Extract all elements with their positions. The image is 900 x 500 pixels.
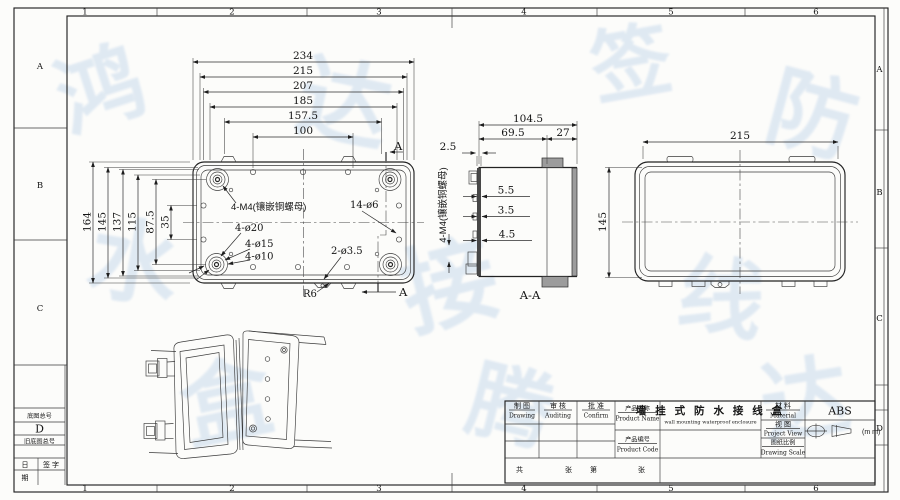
tb-drawing-cn: 制 图	[514, 401, 530, 410]
tb-name-value-en: wall mounting waterproof enclosure	[664, 420, 756, 426]
grid-col-label: 1	[82, 8, 87, 18]
mb-base-no: 底图总号	[27, 412, 52, 420]
tb-scale-en: Drawing Scale	[761, 450, 806, 457]
dim-5-5: 5.5	[498, 185, 515, 197]
grid-col-label: 2	[229, 484, 234, 494]
grid-col-label: 3	[376, 8, 381, 18]
tb-auditing-en: Auditing	[544, 413, 571, 420]
grid-row-label: B	[37, 181, 43, 191]
tb-sheet-di: 第	[590, 465, 597, 474]
tb-material-cn: 材 料	[775, 401, 791, 410]
back-view: 215 145	[597, 130, 858, 294]
drawing-svg: 1 2 3 4 5 6 1 2 3 4 5 6 A B C A B C D	[0, 0, 900, 500]
iso-view	[144, 331, 332, 459]
section-view: 104.5 69.5 27 2.5 5.5 3.5 4.5 4-M4(镶嵌铜螺母…	[437, 113, 577, 302]
grid-col-label: 4	[521, 8, 526, 18]
grid-row-label: C	[876, 314, 883, 324]
dim-145: 145	[97, 212, 109, 232]
grid-col-label: 4	[521, 484, 526, 494]
dim-215: 215	[293, 65, 313, 77]
tb-name-value: 墙 挂 式 防 水 接 线 盒	[636, 404, 785, 417]
ann-m4: 4-M4(镶嵌铜螺母)	[231, 201, 306, 213]
mb-old-no: 旧底图总号	[24, 438, 55, 446]
margin-block: 底图总号 D 旧底图总号 日 签 字 期	[14, 365, 65, 485]
ann-14-d6: 14-ø6	[350, 200, 379, 211]
tb-view-en: Project View	[764, 431, 803, 438]
grid-row-label: B	[876, 188, 882, 198]
tb-product-code-cn: 产品编号	[625, 436, 650, 444]
tb-sheet-zhang1: 张	[565, 465, 572, 474]
grid-col-label: 5	[668, 8, 673, 18]
section-letter-bottom: A	[398, 285, 408, 299]
title-block: 制 图 Drawing 审 核 Auditing 批 准 Confirm 产品名…	[505, 401, 880, 483]
dim-4-5: 4.5	[499, 229, 516, 241]
dim-27: 27	[556, 127, 569, 139]
dim-137: 137	[112, 212, 124, 232]
mb-ri: 日	[22, 461, 29, 469]
dim-215-back: 215	[730, 130, 750, 142]
tb-sheet-zhang2: 张	[638, 465, 645, 474]
tb-confirm-cn: 批 准	[588, 401, 604, 410]
grid-col-label: 5	[668, 484, 673, 494]
tb-unit: (m m)	[862, 429, 880, 436]
dim-157-5: 157.5	[288, 110, 318, 122]
ann-4-d10: 4-ø10	[245, 252, 274, 263]
grid-col-label: 1	[82, 484, 87, 494]
plan-view: A A 234 215 207 185 157.5 100	[82, 50, 425, 300]
sheet-border: 1 2 3 4 5 6 1 2 3 4 5 6 A B C A B C D	[14, 8, 888, 495]
tb-auditing-cn: 审 核	[550, 401, 566, 410]
dim-145-back: 145	[597, 212, 609, 232]
ann-4-d15: 4-ø15	[245, 239, 274, 250]
mb-size: D	[35, 423, 44, 436]
mb-sign: 签 字	[43, 460, 59, 469]
dim-185: 185	[293, 95, 313, 107]
tb-view-cn: 视 图	[775, 420, 791, 429]
dim-100: 100	[293, 125, 313, 137]
projection-symbol-icon	[805, 424, 851, 439]
section-label: A-A	[519, 288, 541, 302]
grid-col-label: 6	[813, 8, 818, 18]
tb-scale-cn: 图纸比例	[771, 439, 796, 447]
dim-69-5: 69.5	[501, 127, 524, 139]
dim-207: 207	[293, 80, 313, 92]
drawing-sheet: 鸿 达 签 防 水 接 线 盒 腾 达	[0, 0, 900, 500]
ann-4-d20: 4-ø20	[235, 223, 264, 234]
tb-sheet-gong: 共	[516, 465, 523, 474]
grid-row-label: A	[875, 65, 883, 75]
grid-row-label: C	[37, 304, 44, 314]
dim-3-5: 3.5	[498, 205, 515, 217]
ann-2-d3-5: 2-ø3.5	[331, 246, 363, 257]
ann-r6: R6	[303, 289, 317, 300]
tb-product-code-en: Product Code	[617, 447, 659, 454]
grid-col-label: 6	[813, 484, 818, 494]
tb-drawing-en: Drawing	[509, 413, 535, 420]
dim-2-5: 2.5	[440, 141, 457, 153]
tb-confirm-en: Confirm	[584, 413, 609, 420]
tb-material-value: ABS	[827, 405, 852, 418]
tb-material-en: Material	[770, 413, 796, 420]
dim-87-5: 87.5	[145, 210, 157, 233]
grid-col-label: 2	[229, 8, 234, 18]
dim-234: 234	[293, 50, 313, 62]
ann-m4-section: 4-M4(镶嵌铜螺母)	[437, 167, 449, 242]
grid-col-label: 3	[376, 484, 381, 494]
mb-qi: 期	[22, 474, 29, 482]
edge-holes	[201, 169, 402, 269]
dim-164: 164	[82, 212, 94, 232]
section-letter-top: A	[393, 139, 403, 153]
dim-35: 35	[160, 215, 172, 228]
dim-115: 115	[127, 212, 139, 232]
grid-row-label: A	[36, 62, 44, 72]
dim-104-5: 104.5	[513, 113, 543, 125]
